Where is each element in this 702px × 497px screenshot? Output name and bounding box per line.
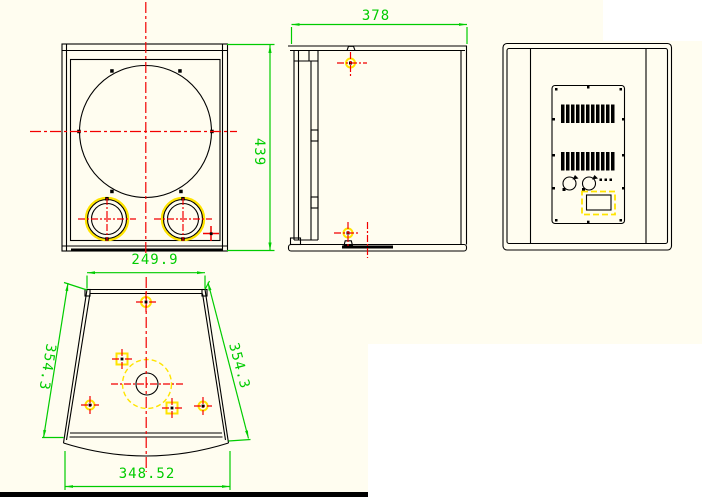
side-screw-marks <box>347 62 353 235</box>
back-view-outline <box>503 44 672 251</box>
front-view <box>30 2 275 256</box>
side-view-outline <box>288 46 467 251</box>
bottom-highlights <box>86 297 208 414</box>
front-centerlines <box>30 2 237 256</box>
heatsink-grille-top <box>561 105 615 124</box>
dimension-bottom-front-width: 348.52 <box>119 467 176 481</box>
back-view <box>503 44 672 251</box>
bottom-view <box>42 271 251 490</box>
corner-screw-dot <box>210 232 213 235</box>
speaker-cabinet-drawing <box>0 0 702 497</box>
woofer-screw-marks <box>71 69 222 251</box>
side-depth-dimension <box>292 23 468 44</box>
side-view <box>288 23 467 258</box>
bottom-centerlines <box>81 277 212 472</box>
terminal-box <box>587 195 612 210</box>
side-screw-highlights <box>344 59 356 238</box>
side-centerlines <box>334 52 368 258</box>
dimension-side-depth: 378 <box>362 9 390 23</box>
dimension-top-back-width: 249.9 <box>131 253 178 267</box>
cad-drawing-screenshot: 378 439 249.9 354.3 354.3 348.52 <box>0 0 702 497</box>
dimension-front-height: 439 <box>252 138 266 166</box>
top-fastener-notch <box>347 46 355 50</box>
heatsink-grille-bottom <box>561 152 615 171</box>
